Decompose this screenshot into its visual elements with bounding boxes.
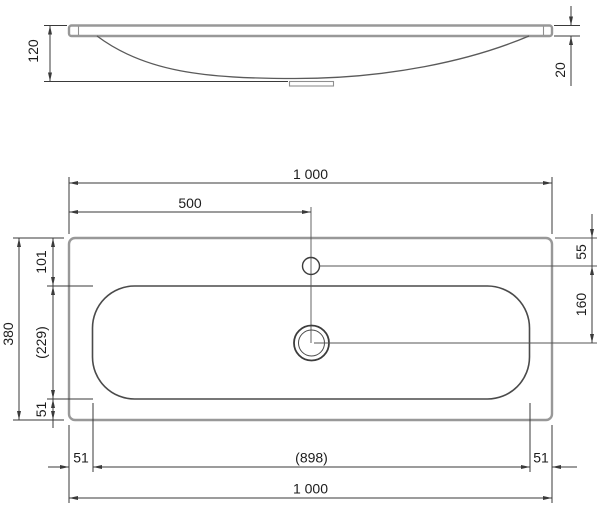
dim-overall-width-top-label: 1 000 bbox=[293, 166, 328, 182]
dim-bowl-depth-ref-label: (229) bbox=[33, 326, 49, 359]
dim-overall-depth-label: 380 bbox=[0, 322, 16, 346]
dim-right-chain: 55 160 bbox=[573, 214, 594, 343]
dim-back-edge-to-bowl-label: 101 bbox=[33, 250, 49, 274]
dim-left-edge-to-bowl-label: 51 bbox=[73, 450, 89, 466]
dim-basin-depth-label: 120 bbox=[25, 39, 41, 63]
plan-view: 1 000 500 380 1 bbox=[0, 166, 597, 503]
worktop-profile bbox=[69, 26, 552, 37]
dim-bowl-width-ref-label: (898) bbox=[295, 450, 328, 466]
dim-rim-thickness: 20 bbox=[552, 6, 580, 86]
dim-bowl-to-right-edge-label: 51 bbox=[533, 450, 549, 466]
dim-rim-thickness-label: 20 bbox=[552, 62, 568, 78]
washbasin-technical-drawing: 120 20 bbox=[0, 0, 600, 504]
dim-tap-center: 500 bbox=[69, 195, 311, 214]
dim-overall-width-top: 1 000 bbox=[69, 166, 552, 234]
basin-underside-curve bbox=[97, 36, 529, 79]
dim-back-edge-to-tap-label: 55 bbox=[573, 244, 589, 260]
drain-fitting-outline bbox=[290, 82, 334, 87]
dim-overall-width-bottom: 1 000 bbox=[69, 481, 552, 501]
side-view: 120 20 bbox=[25, 6, 580, 86]
dim-tap-center-label: 500 bbox=[178, 195, 202, 211]
worktop-outline bbox=[69, 238, 552, 420]
dim-overall-depth: 380 bbox=[0, 238, 64, 420]
dim-bowl-to-front-edge-label: 51 bbox=[33, 402, 49, 418]
dim-overall-width-bottom-label: 1 000 bbox=[293, 481, 328, 497]
drawing-canvas: 120 20 bbox=[0, 0, 600, 504]
dim-tap-to-drain-label: 160 bbox=[573, 293, 589, 317]
